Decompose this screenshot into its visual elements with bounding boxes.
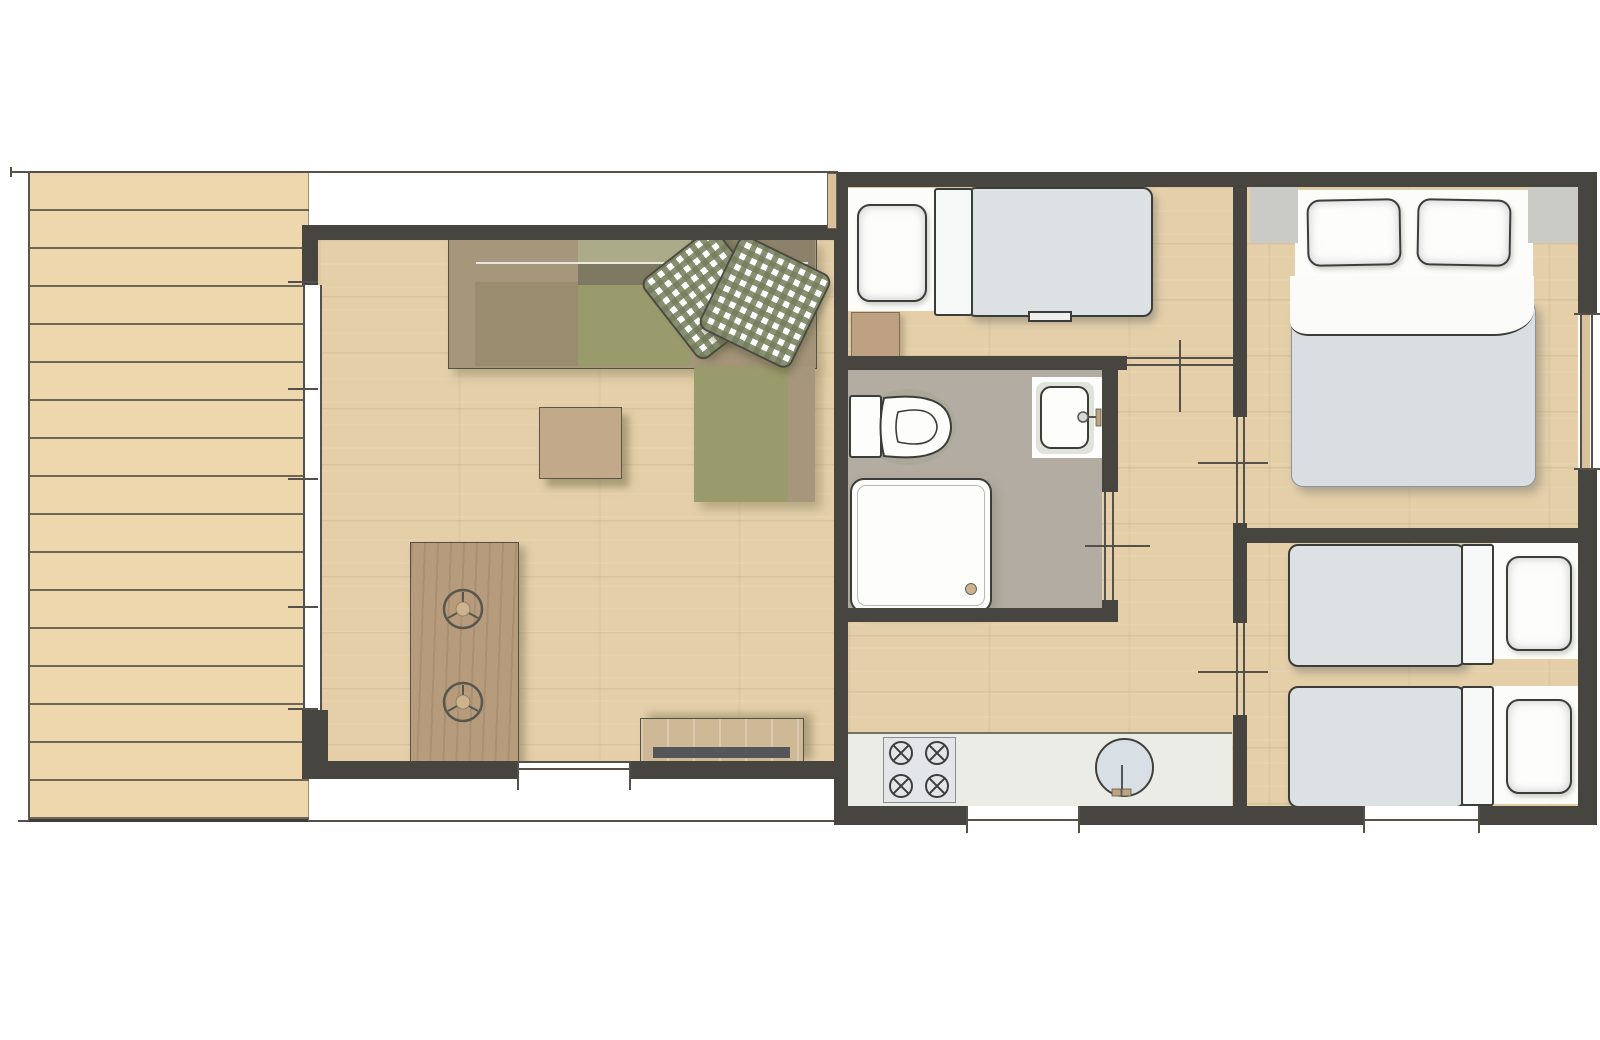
bedside-pad-right <box>1528 186 1578 243</box>
kitchen-sink <box>1095 738 1154 797</box>
wall-bedroom-divider-lower <box>1233 715 1247 806</box>
wall-bathroom-top <box>845 356 1127 370</box>
single-bed-pillow <box>857 204 927 302</box>
hob-cooktop <box>883 737 956 803</box>
wall-bathroom-bottom <box>845 608 1118 622</box>
wall-bathroom-right-upper <box>1102 370 1118 492</box>
sliding-door-line <box>518 761 630 763</box>
sliding-door-living <box>518 761 630 779</box>
wall-living-bottom-left <box>302 761 518 779</box>
wall-living-top <box>302 225 848 240</box>
site-boundary-tick-top-left <box>10 167 12 177</box>
door-single-bedroom-tick <box>1179 340 1181 412</box>
shower-tray <box>850 478 992 613</box>
sofa-chaise-cushion-olive <box>694 366 788 502</box>
wall-living-bottom-right <box>630 761 848 779</box>
wall-right-section-top <box>834 172 1597 187</box>
terrace-deck <box>28 173 309 822</box>
window-master-frame-fill <box>1581 315 1590 468</box>
door-twin-line <box>1236 623 1238 715</box>
wall-right-exterior <box>1578 172 1597 825</box>
twin-bed-2-mattress <box>1288 686 1466 808</box>
single-bed-blanket-fold <box>934 188 973 316</box>
window-frame-line <box>1591 315 1593 468</box>
double-bed-pillow-left <box>1306 198 1401 267</box>
wall-right-section-bottom <box>834 806 1597 825</box>
window-tick <box>1363 806 1365 833</box>
door-master-line <box>1236 417 1238 523</box>
twin-bed-1-blanket-fold <box>1461 544 1494 665</box>
window-tick <box>1574 468 1600 470</box>
window-mullion-tick <box>288 606 318 608</box>
window-mullion-tick <box>288 708 318 710</box>
bedside-pad-left <box>1250 186 1298 243</box>
window-outer-line <box>968 819 1080 821</box>
single-bed-mattress <box>966 187 1153 317</box>
window-twin-bottom <box>1365 806 1480 825</box>
door-bathroom-tick <box>1085 545 1150 547</box>
shower-tray-inner-line <box>857 485 985 606</box>
window-mullion-tick <box>288 478 318 480</box>
wall-bedroom-divider-upper <box>1233 187 1247 417</box>
window-tick <box>1478 806 1480 833</box>
window-mullion-tick <box>288 281 318 283</box>
wall-center-vertical <box>834 172 848 825</box>
sliding-door-tick <box>629 761 631 790</box>
window-tick <box>1574 313 1600 315</box>
tv-sideboard <box>640 718 804 764</box>
door-twin-line <box>1243 623 1245 715</box>
door-master-tick <box>1198 462 1268 464</box>
sofa-chaise <box>694 366 815 502</box>
wall-living-left-upper <box>302 225 318 285</box>
corner-wood-post <box>827 173 837 229</box>
sliding-door-line <box>518 768 630 770</box>
door-twin-tick <box>1198 671 1268 673</box>
washbasin-counter <box>1032 377 1102 458</box>
twin-bed-2-blanket-fold <box>1461 686 1494 806</box>
window-band-living-left <box>303 285 322 710</box>
dining-table <box>410 542 519 765</box>
twin-bed-2-pillow <box>1506 699 1572 794</box>
window-outer-line <box>1365 819 1480 821</box>
window-frame-line <box>1580 315 1582 468</box>
double-bed-pillow-right <box>1416 198 1511 267</box>
twin-bed-1-pillow <box>1506 556 1572 651</box>
twin-bed-1-mattress <box>1288 544 1466 667</box>
bed-frame-handle <box>1028 311 1072 322</box>
ottoman-side-table <box>539 407 622 479</box>
site-boundary-tick-bottom-left <box>18 820 28 822</box>
double-bed-sheet-fold <box>1290 276 1534 336</box>
window-tick <box>1078 806 1080 833</box>
site-boundary-line-bottom <box>307 820 838 822</box>
sliding-door-tick <box>517 761 519 790</box>
wall-living-left-corner <box>302 710 328 765</box>
sofa-seat-cushion-left <box>475 282 578 366</box>
window-kitchen-bottom <box>968 806 1080 825</box>
window-mullion-tick <box>288 388 318 390</box>
nightstand <box>851 312 900 359</box>
tv-screen <box>653 747 790 758</box>
floor-plan-canvas <box>0 0 1600 1040</box>
wall-master-twin-divider <box>1233 528 1578 543</box>
door-master-line <box>1243 417 1245 523</box>
window-tick <box>966 806 968 833</box>
